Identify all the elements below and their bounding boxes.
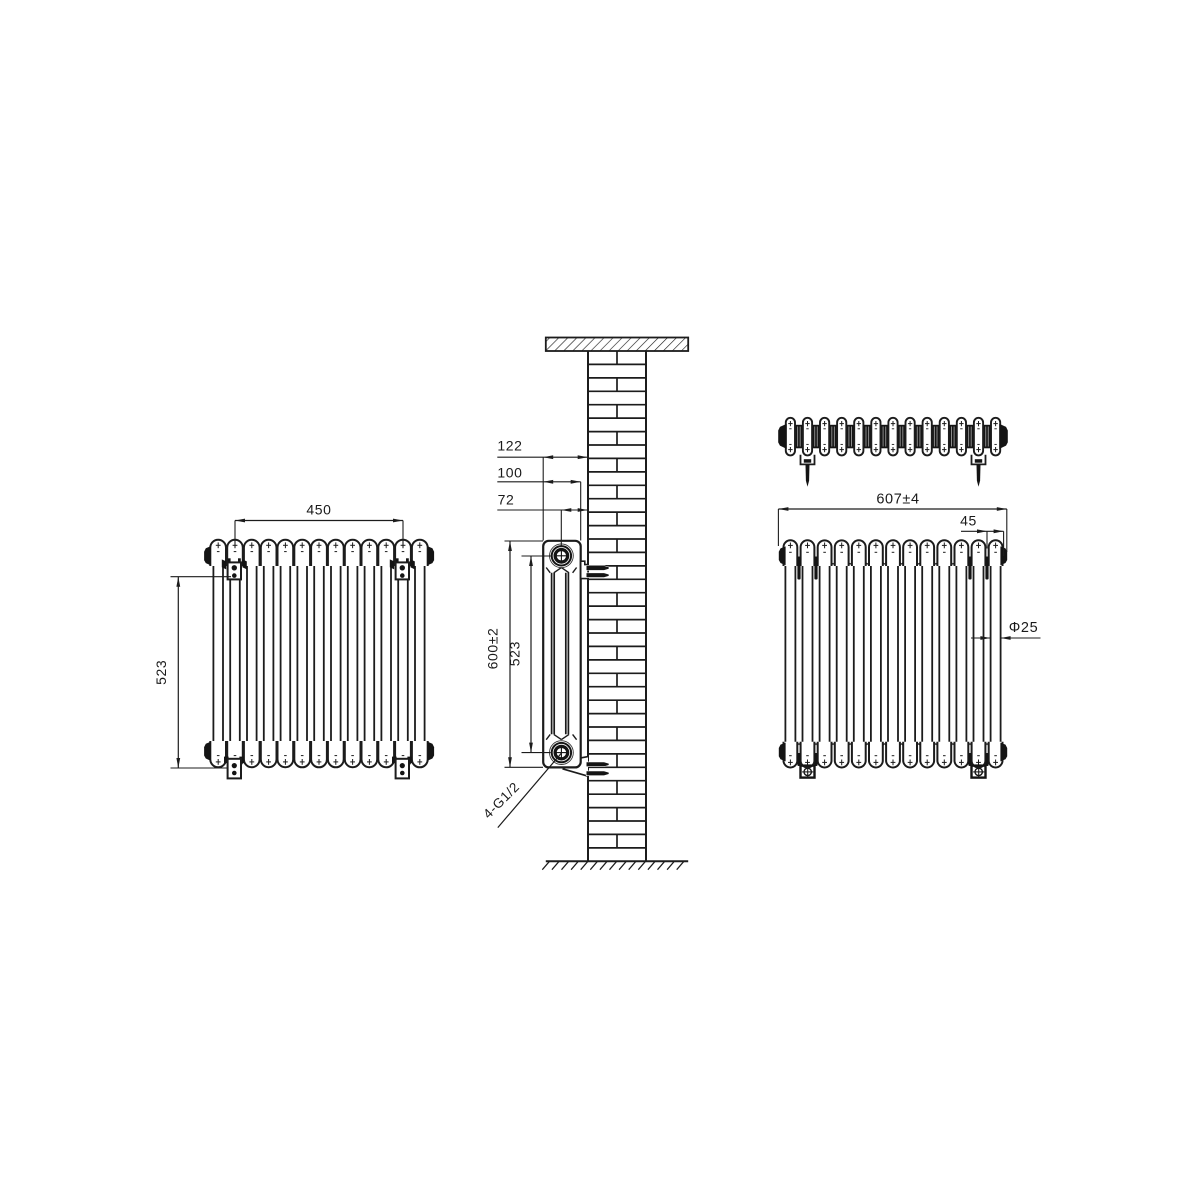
svg-text:523: 523 xyxy=(153,660,169,685)
svg-text:607±4: 607±4 xyxy=(876,491,919,507)
svg-text:523: 523 xyxy=(507,641,523,666)
svg-text:600±2: 600±2 xyxy=(485,628,501,670)
svg-text:450: 450 xyxy=(306,502,331,518)
svg-text:100: 100 xyxy=(497,464,522,480)
svg-text:Φ25: Φ25 xyxy=(1009,620,1039,636)
svg-text:122: 122 xyxy=(497,438,522,454)
svg-text:72: 72 xyxy=(498,491,515,507)
svg-text:45: 45 xyxy=(960,512,977,528)
